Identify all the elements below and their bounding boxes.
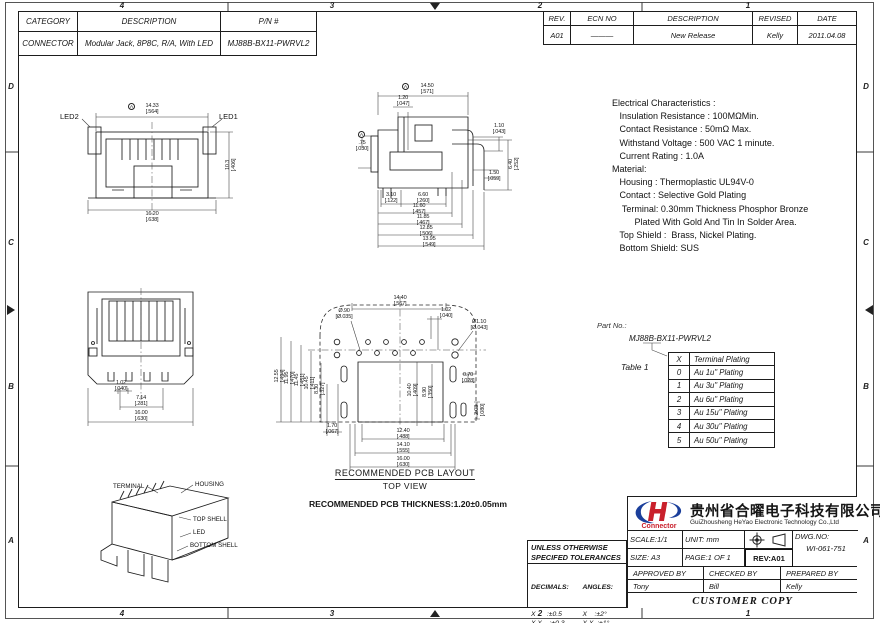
note-line: Top Shield : Brass, Nickel Plating. bbox=[612, 229, 874, 242]
date-header: DATE bbox=[798, 11, 856, 26]
zone-right-d: D bbox=[860, 82, 872, 91]
decimal-tolerance-line: X.X :±0.3 bbox=[531, 619, 582, 623]
dimension-label: 1.02 [.040] bbox=[115, 381, 128, 393]
pn-value: MJ88B-BX11-PWRVL2 bbox=[221, 32, 316, 55]
description-header: DESCRIPTION bbox=[78, 12, 221, 32]
note-line: Material: bbox=[612, 163, 874, 176]
zone-bottom-4: 4 bbox=[116, 609, 128, 618]
signature-grid: APPROVED BY CHECKED BY PREPARED BY Tony … bbox=[628, 567, 857, 593]
tolerance-block: UNLESS OTHERWISE SPECIFED TOLERANCES DEC… bbox=[527, 540, 627, 608]
pn-header: P/N # bbox=[221, 12, 316, 32]
customer-copy-stamp: CUSTOMER COPY bbox=[628, 593, 857, 609]
terminal-label: TERMINAL bbox=[113, 483, 144, 490]
note-line: Insulation Resistance : 100MΩMin. bbox=[612, 110, 874, 123]
angle-tolerance-line: X :±2° bbox=[582, 610, 626, 619]
led-label: LED bbox=[193, 529, 205, 536]
table1-cell: Au 1u" Plating bbox=[690, 366, 774, 379]
logo-text: Connector bbox=[642, 523, 677, 530]
prepared-by-label: PREPARED BY bbox=[781, 567, 857, 580]
dimension-label: 14.50 [.571] bbox=[421, 84, 434, 96]
category-header: CATEGORY bbox=[19, 12, 78, 32]
tolerance-title: UNLESS OTHERWISE SPECIFED TOLERANCES bbox=[528, 541, 626, 564]
revision-table: REV. ECN NO DESCRIPTION REVISED DATE A01… bbox=[543, 11, 857, 45]
dimension-label: 16.20 [.638] bbox=[146, 212, 159, 224]
note-line: Current Rating : 1.0A bbox=[612, 150, 874, 163]
third-angle-projection-icon bbox=[747, 532, 791, 548]
zone-bottom-3: 3 bbox=[326, 609, 338, 618]
led2-label: LED2 bbox=[60, 112, 79, 121]
dimension-label: 6.40 [.252] bbox=[509, 158, 521, 171]
housing-label: HOUSING bbox=[195, 481, 224, 488]
table1-cell: Au 50u" Plating bbox=[690, 433, 774, 446]
note-line: Contact Resistance : 50mΩ Max. bbox=[612, 123, 874, 136]
dimension-label: 14.33 [.564] bbox=[146, 104, 159, 116]
zone-right-a: A bbox=[860, 536, 872, 545]
pcb-thickness-note: RECOMMENDED PCB THICKNESS:1.20±0.05mm bbox=[309, 499, 507, 509]
checked-by-value: Bill bbox=[704, 580, 781, 593]
dimension-label: 0.70 [.028] bbox=[462, 373, 475, 385]
dimension-label: 12.40 [.488] bbox=[397, 429, 410, 441]
dimension-label: Ø.90 [Ø.035] bbox=[336, 309, 353, 321]
dimension-label: 14.40 [.567] bbox=[394, 296, 407, 308]
table1-cell: 3 bbox=[669, 407, 690, 420]
table1-cell: Au 3u" Plating bbox=[690, 380, 774, 393]
revised-header: REVISED bbox=[753, 11, 798, 26]
table1-cell: Au 6u" Plating bbox=[690, 393, 774, 406]
prepared-by-value: Kelly bbox=[781, 580, 857, 593]
angle-tolerance-line: X.X :±1° bbox=[582, 619, 626, 623]
decimals-label: DECIMALS: bbox=[531, 583, 582, 592]
dimension-label: 1.70 [.067] bbox=[326, 424, 339, 436]
dimension-label: 2.03 [.080] bbox=[475, 404, 487, 417]
dimension-label: 1.02 [.040] bbox=[440, 308, 453, 320]
rev-badge: REV:A01 bbox=[745, 549, 793, 567]
dimension-label: 10.3 [.406] bbox=[226, 159, 238, 172]
table1-cell: 0 bbox=[669, 366, 690, 379]
dimension-label: 8.90 [.350] bbox=[423, 386, 435, 399]
tolerance-title-line2: SPECIFED TOLERANCES bbox=[531, 553, 626, 563]
table1-cell: Au 30u" Plating bbox=[690, 420, 774, 433]
decimal-tolerance-line: X :±0.5 bbox=[531, 610, 582, 619]
angle-tolerances: ANGLES: X :±2°X.X :±1° bbox=[582, 565, 626, 623]
note-line: Terminal: 0.30mm Thickness Phosphor Bron… bbox=[612, 203, 874, 216]
dimension-label: 10.40 [.409] bbox=[408, 384, 420, 397]
dimension-label: 14.10 [.555] bbox=[397, 443, 410, 455]
datum-a-marker: A bbox=[358, 131, 365, 138]
company-name-en: GuiZhousheng HeYao Electronic Technology… bbox=[690, 519, 858, 526]
top-shell-label: TOP SHELL bbox=[193, 516, 227, 523]
dimension-label: 1.10 [.043] bbox=[493, 124, 506, 136]
zone-top-3: 3 bbox=[326, 1, 338, 10]
note-line: Withstand Voltage : 500 VAC 1 minute. bbox=[612, 137, 874, 150]
description-value: Modular Jack, 8P8C, R/A, With LED bbox=[78, 32, 221, 55]
dimension-label: 7.14 [.281] bbox=[135, 396, 148, 408]
page-value: PAGE:1 OF 1 bbox=[683, 549, 745, 567]
checked-by-label: CHECKED BY bbox=[704, 567, 781, 580]
rev-header: REV. bbox=[544, 11, 571, 26]
zone-left-b: B bbox=[5, 382, 17, 391]
rev-description-header: DESCRIPTION bbox=[634, 11, 753, 26]
pcb-layout-caption: RECOMMENDED PCB LAYOUT bbox=[335, 468, 475, 480]
title-block-info-grid: SCALE:1/1 UNIT: mm DWG.NO: WI-061-751 SI… bbox=[628, 531, 857, 567]
title-block: Connector 贵州省合曜电子科技有限公司 GuiZhousheng HeY… bbox=[627, 496, 857, 608]
dimension-label: 13.95 [.549] bbox=[423, 237, 436, 249]
company-row: Connector 贵州省合曜电子科技有限公司 GuiZhousheng HeY… bbox=[628, 497, 858, 531]
ecn-header: ECN NO bbox=[571, 11, 634, 26]
table1-cell: 2 bbox=[669, 393, 690, 406]
datum-a-marker: A bbox=[402, 83, 409, 90]
dwg-no-label: DWG.NO: bbox=[795, 532, 829, 541]
datum-a-marker: A bbox=[128, 103, 135, 110]
table1-cell: 1 bbox=[669, 380, 690, 393]
projection-symbol-cell bbox=[745, 531, 793, 549]
dimension-label: Ø1.10 [Ø.043] bbox=[471, 320, 488, 332]
company-name-cn: 贵州省合曜电子科技有限公司 bbox=[690, 500, 856, 521]
pcb-top-view-caption: TOP VIEW bbox=[383, 481, 427, 491]
rev-description-value: New Release bbox=[634, 26, 753, 45]
revised-value: Kelly bbox=[753, 26, 798, 45]
category-value: CONNECTOR bbox=[19, 32, 78, 55]
zone-top-2: 2 bbox=[534, 1, 546, 10]
dimension-label: 8.30 [.327] bbox=[315, 383, 327, 396]
electrical-material-notes: Electrical Characteristics : Insulation … bbox=[612, 97, 874, 255]
note-line: Plated With Gold And Tin In Solder Area. bbox=[612, 216, 874, 229]
note-line: Electrical Characteristics : bbox=[612, 97, 874, 110]
note-line: Contact : Selective Gold Plating bbox=[612, 189, 874, 202]
company-logo: Connector bbox=[630, 498, 688, 530]
dimension-label: 16.00 [.630] bbox=[397, 457, 410, 469]
dimension-label: .75 [.030] bbox=[356, 141, 369, 153]
drawing-sheet: 4 3 2 1 4 3 2 1 D C B A D C B A bbox=[0, 0, 880, 623]
decimal-tolerance-lines: X :±0.5X.X :±0.3X.XX :±0.2 bbox=[531, 610, 582, 623]
tolerance-title-line1: UNLESS OTHERWISE bbox=[531, 543, 626, 553]
zone-bottom-1: 1 bbox=[742, 609, 754, 618]
led1-label: LED1 bbox=[219, 112, 238, 121]
dwg-no-value: WI-061-751 bbox=[795, 544, 857, 553]
table1-cell: 5 bbox=[669, 433, 690, 446]
zone-left-c: C bbox=[5, 238, 17, 247]
bottom-shell-label: BOTTOM SHELL bbox=[190, 542, 238, 549]
table1-caption: Table 1 bbox=[621, 362, 649, 372]
table1-header-plating: Terminal Plating bbox=[690, 353, 774, 366]
dimension-label: 3.10 [.122] bbox=[385, 193, 398, 205]
approved-by-value: Tony bbox=[628, 580, 704, 593]
part-header-table: CATEGORY DESCRIPTION P/N # CONNECTOR Mod… bbox=[18, 11, 317, 56]
note-line: Housing : Thermoplastic UL94V-0 bbox=[612, 176, 874, 189]
dimension-label: 1.50 [.059] bbox=[488, 171, 501, 183]
table1-cell: 4 bbox=[669, 420, 690, 433]
table1-cell: Au 15u" Plating bbox=[690, 407, 774, 420]
zone-top-1: 1 bbox=[742, 1, 754, 10]
zone-left-a: A bbox=[5, 536, 17, 545]
dimension-label: 16.00 [.630] bbox=[135, 411, 148, 423]
part-no-label: Part No.: bbox=[597, 321, 627, 330]
date-value: 2011.04.08 bbox=[798, 26, 856, 45]
dimension-label: 1.20 [.047] bbox=[397, 96, 410, 108]
zone-top-4: 4 bbox=[116, 1, 128, 10]
ecn-value: ——— bbox=[571, 26, 634, 45]
decimal-tolerances: DECIMALS: X :±0.5X.X :±0.3X.XX :±0.2 bbox=[531, 565, 582, 623]
terminal-plating-table: X Terminal Plating 0 Au 1u" Plating 1 Au… bbox=[668, 352, 775, 448]
size-value: SIZE: A3 bbox=[628, 549, 683, 567]
unit-value: UNIT: mm bbox=[683, 531, 745, 549]
note-line: Bottom Shield: SUS bbox=[612, 242, 874, 255]
part-no-value: MJ88B-BX11-PWRVL2 bbox=[629, 334, 711, 343]
zone-right-b: B bbox=[860, 382, 872, 391]
approved-by-label: APPROVED BY bbox=[628, 567, 704, 580]
scale-value: SCALE:1/1 bbox=[628, 531, 683, 549]
angles-label: ANGLES: bbox=[582, 583, 626, 592]
dwg-no-cell: DWG.NO: WI-061-751 bbox=[793, 531, 857, 567]
rev-value: A01 bbox=[544, 26, 571, 45]
angle-tolerance-lines: X :±2°X.X :±1° bbox=[582, 610, 626, 623]
zone-left-d: D bbox=[5, 82, 17, 91]
table1-header-x: X bbox=[669, 353, 690, 366]
